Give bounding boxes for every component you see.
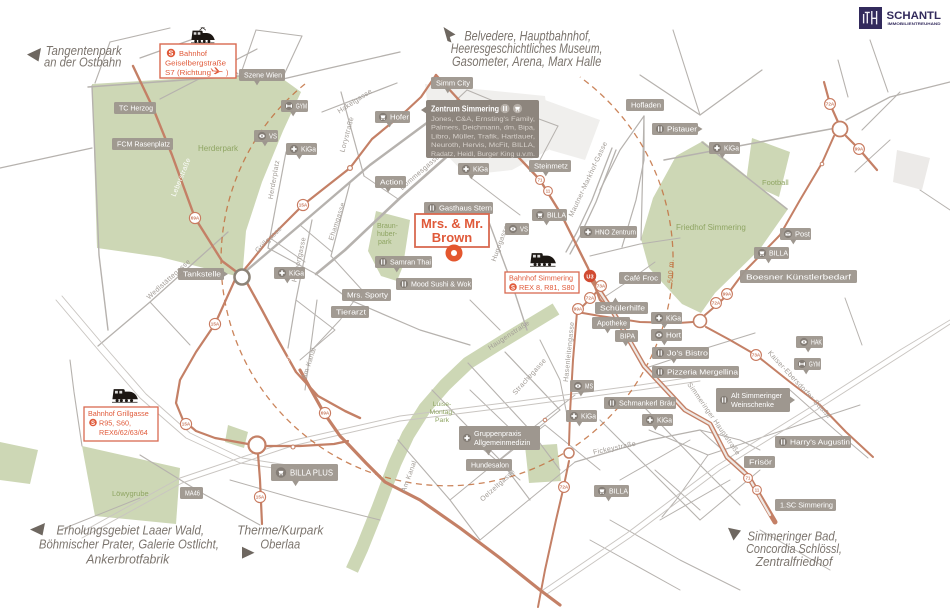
svg-text:Harry's Augustin: Harry's Augustin [790,439,850,447]
svg-text:72A: 72A [712,301,721,306]
svg-text:S: S [511,286,515,292]
svg-text:Brown: Brown [432,230,473,245]
svg-text:Samran Thai: Samran Thai [390,259,431,267]
svg-text:500 m.: 500 m. [667,259,675,284]
svg-text:Boesner Künstlerbedarf: Boesner Künstlerbedarf [746,273,852,282]
svg-text:KiGa: KiGa [289,270,304,278]
svg-text:Herderpark: Herderpark [198,144,239,153]
svg-text:Zentrum Simmering: Zentrum Simmering [431,105,499,114]
svg-text:KiGa: KiGa [724,145,739,153]
svg-text:Geiselbergstraße: Geiselbergstraße [165,60,226,68]
svg-text:15A: 15A [256,495,265,500]
svg-text:73A: 73A [597,284,606,289]
svg-text:Friedhof Simmering: Friedhof Simmering [676,223,746,232]
svg-text:KiGa: KiGa [301,146,316,154]
svg-text:Schmankerl Bräu: Schmankerl Bräu [619,400,675,408]
svg-text:1.SC Simmering: 1.SC Simmering [780,502,833,510]
svg-text:Mood Sushi & Wok: Mood Sushi & Wok [411,281,471,289]
svg-text:99A: 99A [723,292,732,297]
svg-text:11: 11 [755,488,760,493]
svg-text:11: 11 [546,189,551,194]
svg-text:REX6/62/63/64: REX6/62/63/64 [99,428,148,437]
svg-text:Café Froc: Café Froc [624,275,658,283]
svg-text:Erholungsgebiet Laaer Wald,: Erholungsgebiet Laaer Wald, [57,523,205,538]
svg-text:Hundesalon: Hundesalon [471,462,509,470]
svg-text:Oberlaa: Oberlaa [260,537,300,552]
svg-text:Tankstelle: Tankstelle [183,271,221,279]
svg-text:Libro, Müller, Trafik, Hartlau: Libro, Müller, Trafik, Hartlauer, [431,133,535,140]
svg-text:Park: Park [435,417,450,424]
svg-text:Löwygrube: Löwygrube [112,489,149,498]
svg-text:MS: MS [585,383,593,391]
svg-text:15A: 15A [182,422,191,427]
svg-text:park: park [378,239,392,246]
svg-text:U3: U3 [586,275,593,281]
svg-text:MA46: MA46 [185,490,200,498]
svg-text:Alt Simmeringer: Alt Simmeringer [731,391,783,400]
svg-text:99A: 99A [855,147,864,152]
svg-text:Frisör: Frisör [749,459,773,467]
svg-text:KiGa: KiGa [581,413,596,421]
svg-text:15A: 15A [299,203,308,208]
svg-text:Radatz, Heidl, Burger King u.v: Radatz, Heidl, Burger King u.v.m. [431,151,535,158]
svg-text:Bahnhof Grillgasse: Bahnhof Grillgasse [88,409,149,418]
svg-text:Hofladen: Hofladen [631,102,661,110]
svg-text:S: S [91,421,95,427]
svg-text:Jones, C&A, Ernsting's Family,: Jones, C&A, Ernsting's Family, [431,116,535,123]
svg-text:72A: 72A [586,296,595,301]
svg-text:Neuroth, Hervis, McFit, BILLA,: Neuroth, Hervis, McFit, BILLA, [431,142,535,149]
svg-text:Bahnhof: Bahnhof [179,50,207,58]
svg-text:Böhmischer Prater, Galerie Ost: Böhmischer Prater, Galerie Ostlicht, [39,537,219,552]
svg-text:Pistauer: Pistauer [667,126,698,134]
svg-text:Post: Post [795,231,810,239]
svg-text:Apotheke: Apotheke [597,320,627,328]
svg-text:IMMOBILIENTREUHAND: IMMOBILIENTREUHAND [888,22,942,26]
svg-text:GYM: GYM [296,103,307,111]
svg-text:S7 (Richtung: S7 (Richtung [165,69,211,77]
svg-text:Mrs. & Mr.: Mrs. & Mr. [421,216,483,231]
svg-text:Bahnhof Simmering: Bahnhof Simmering [509,274,573,283]
svg-text:Schülerhilfe: Schülerhilfe [600,305,645,313]
svg-text:BILLA: BILLA [547,212,566,220]
svg-text:Gasthaus Stern: Gasthaus Stern [439,205,492,213]
svg-text:69A: 69A [321,411,330,416]
svg-text:Gasometer, Arena, Marx Halle: Gasometer, Arena, Marx Halle [452,54,602,69]
svg-text:Palmers, Deichmann, dm, Bipa,: Palmers, Deichmann, dm, Bipa, [431,125,535,132]
svg-text:SCHANTL: SCHANTL [887,10,942,22]
svg-text:Allgemeinmedizin: Allgemeinmedizin [474,438,530,447]
svg-text:72A: 72A [560,485,569,490]
svg-text:R95, S60,: R95, S60, [99,419,131,428]
svg-text:99A: 99A [574,307,583,312]
svg-text:Pizzeria Mergellina: Pizzeria Mergellina [667,369,738,377]
svg-text:VS: VS [520,226,528,234]
svg-text:BILLA: BILLA [609,488,628,496]
svg-text:Steinmetz: Steinmetz [534,163,568,171]
svg-text:KiGa: KiGa [473,166,488,174]
svg-text:71: 71 [746,476,751,481]
svg-text:KiGa: KiGa [657,417,672,425]
svg-text:Hort: Hort [666,332,681,340]
svg-text:BILLA PLUS: BILLA PLUS [290,469,333,478]
svg-text:Gruppenpraxis: Gruppenpraxis [474,429,522,438]
svg-text:HNO Zentrum: HNO Zentrum [595,229,636,237]
svg-text:Jo's Bistro: Jo's Bistro [667,350,708,358]
svg-text:): ) [226,69,228,77]
svg-text:Hofer: Hofer [390,114,410,122]
svg-text:72A: 72A [826,102,835,107]
svg-text:BILLA: BILLA [769,250,788,258]
svg-text:VS: VS [269,133,277,141]
svg-text:Szene Wien: Szene Wien [244,72,282,80]
svg-text:69A: 69A [191,216,200,221]
svg-text:Montag-: Montag- [430,409,455,416]
svg-text:S: S [169,51,174,58]
svg-text:Action: Action [380,179,403,187]
svg-text:REX 8, R81, S80: REX 8, R81, S80 [519,283,575,292]
svg-text:Luise-: Luise- [433,401,452,408]
svg-text:71: 71 [538,178,543,183]
svg-text:huber-: huber- [377,231,398,238]
svg-text:Mrs. Sporty: Mrs. Sporty [347,292,389,300]
svg-text:Ankerbrotfabrik: Ankerbrotfabrik [85,551,170,566]
svg-text:Zentralfriedhof: Zentralfriedhof [755,554,834,569]
svg-text:KiGa: KiGa [666,315,681,323]
svg-text:HAK: HAK [811,339,822,347]
svg-text:73A: 73A [752,353,761,358]
svg-text:Football: Football [762,178,789,187]
svg-text:Weinschenke: Weinschenke [731,400,774,409]
svg-text:FCM Rasenplatz: FCM Rasenplatz [117,141,170,149]
svg-text:Therme/Kurpark: Therme/Kurpark [237,523,324,538]
svg-text:Tierarzt: Tierarzt [336,309,366,317]
svg-text:TC Herzog: TC Herzog [119,105,153,113]
svg-text:Braun-: Braun- [377,223,399,230]
svg-text:BIPA: BIPA [620,333,635,341]
svg-text:15A: 15A [211,322,220,327]
svg-text:Simm City: Simm City [436,80,470,88]
svg-text:an der Ostbahn: an der Ostbahn [44,54,121,69]
svg-text:GYM: GYM [809,361,820,369]
